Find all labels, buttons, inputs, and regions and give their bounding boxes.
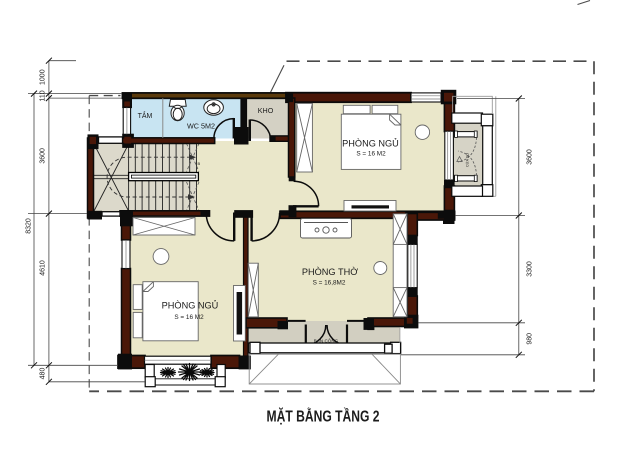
- svg-text:KHO: KHO: [258, 106, 274, 115]
- svg-text:3600: 3600: [527, 149, 534, 165]
- svg-text:TẮM: TẮM: [138, 111, 153, 120]
- svg-text:980: 980: [527, 333, 534, 345]
- svg-text:3600: 3600: [40, 148, 47, 164]
- svg-text:S = 16 M2: S = 16 M2: [356, 150, 386, 157]
- svg-text:PHÒNG NGỦ: PHÒNG NGỦ: [342, 137, 399, 148]
- svg-text:8320: 8320: [26, 218, 33, 234]
- svg-text:B: B: [198, 161, 201, 166]
- svg-text:4610: 4610: [40, 260, 47, 276]
- svg-text:PHÒNG THỜ: PHÒNG THỜ: [302, 267, 358, 277]
- svg-text:MẶT BẰNG TẦNG 2: MẶT BẰNG TẦNG 2: [267, 408, 380, 426]
- svg-text:110: 110: [40, 90, 47, 101]
- svg-text:WC 5M2: WC 5M2: [187, 121, 215, 130]
- svg-text:S = 16 M2: S = 16 M2: [174, 314, 204, 321]
- svg-text:S = 16,8M2: S = 16,8M2: [313, 280, 346, 287]
- svg-text:1000: 1000: [40, 69, 47, 85]
- svg-text:BAN CÔNG: BAN CÔNG: [314, 338, 339, 344]
- svg-text:3300: 3300: [527, 261, 534, 277]
- svg-text:PHÒNG NGỦ: PHÒNG NGỦ: [162, 299, 219, 310]
- svg-text:CỨA SỔ: CỨA SỔ: [465, 153, 470, 167]
- svg-text:480: 480: [40, 368, 47, 380]
